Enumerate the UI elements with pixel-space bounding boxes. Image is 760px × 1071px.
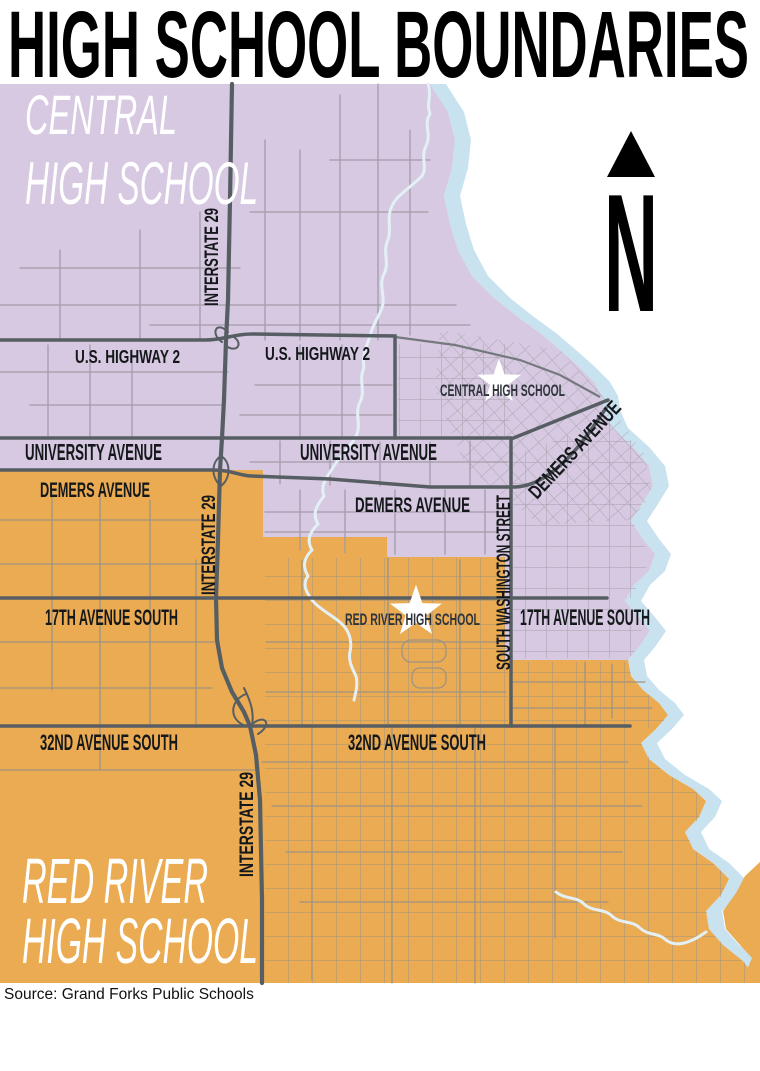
page-title: HIGH SCHOOL BOUNDARIES	[8, 0, 749, 98]
school-label-red-river: RED RIVER HIGH SCHOOL	[345, 610, 480, 629]
school-label-central: CENTRAL HIGH SCHOOL	[440, 381, 565, 400]
north-letter: N	[604, 159, 658, 347]
road-label-interstate-29-central: INTERSTATE 29	[199, 495, 220, 595]
map-canvas: CENTRAL HIGH SCHOOL RED RIVER HIGH SCHOO…	[0, 0, 760, 1066]
road-label-university-avenue-east: UNIVERSITY AVENUE	[300, 439, 437, 465]
road-label-17th-avenue-south-east: 17TH AVENUE SOUTH	[520, 605, 650, 630]
road-label-demers-avenue-west: DEMERS AVENUE	[40, 479, 150, 502]
road-label-interstate-29-south: INTERSTATE 29	[237, 772, 258, 877]
region-label-red-river-line2: HIGH SCHOOL	[22, 905, 258, 977]
road-label-demers-avenue-central: DEMERS AVENUE	[355, 494, 470, 517]
north-compass: N	[604, 131, 658, 347]
road-label-17th-avenue-south-west: 17TH AVENUE SOUTH	[45, 605, 178, 630]
road-label-32nd-avenue-south-east: 32ND AVENUE SOUTH	[348, 730, 486, 755]
road-label-south-washington-street: SOUTH WASHINGTON STREET	[494, 495, 515, 670]
road-label-32nd-avenue-south-west: 32ND AVENUE SOUTH	[40, 730, 178, 755]
region-label-central-line2: HIGH SCHOOL	[25, 150, 258, 217]
road-label-us-highway-2-west: U.S. HIGHWAY 2	[75, 347, 180, 367]
road-label-us-highway-2-east: U.S. HIGHWAY 2	[265, 344, 370, 364]
road-label-university-avenue-west: UNIVERSITY AVENUE	[25, 439, 162, 465]
source-note: Source: Grand Forks Public Schools	[4, 986, 254, 1003]
road-label-interstate-29-north: INTERSTATE 29	[202, 208, 223, 306]
